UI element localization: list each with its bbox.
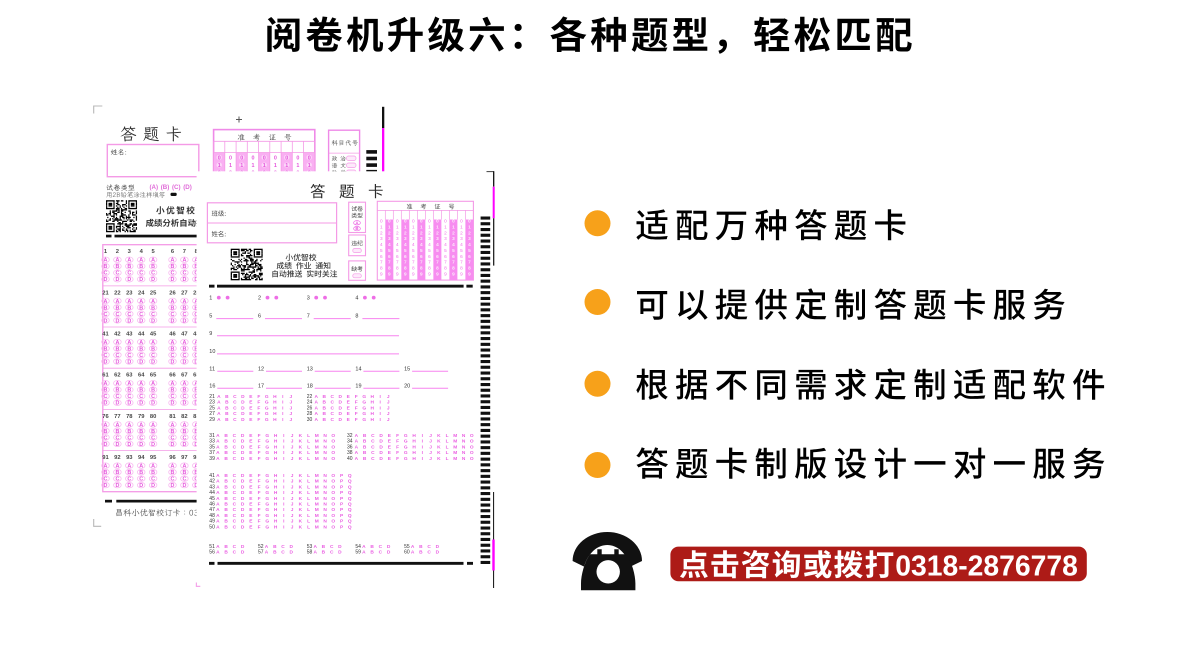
svg-text:ABCDEFGHIJKLMNO: ABCDEFGHIJKLMNO bbox=[355, 433, 474, 439]
svg-text:ABCDEFGHIJKLMNO: ABCDEFGHIJKLMNO bbox=[216, 444, 335, 450]
svg-text:6: 6 bbox=[258, 314, 261, 320]
svg-text:4: 4 bbox=[355, 296, 358, 302]
svg-text:8: 8 bbox=[355, 314, 358, 320]
svg-text:59: 59 bbox=[355, 550, 361, 556]
svg-text:67: 67 bbox=[181, 373, 187, 379]
svg-text:19: 19 bbox=[355, 383, 361, 389]
svg-text:ABCDEFGHIJKLMNO: ABCDEFGHIJKLMNO bbox=[216, 456, 335, 462]
svg-text:18: 18 bbox=[307, 383, 313, 389]
svg-text:41: 41 bbox=[102, 331, 109, 337]
svg-text:30: 30 bbox=[307, 417, 313, 423]
svg-text:20: 20 bbox=[404, 383, 410, 389]
svg-text:ABCDEFGHIJKLMNO: ABCDEFGHIJKLMNO bbox=[355, 444, 474, 450]
svg-text:61: 61 bbox=[102, 373, 109, 379]
svg-text:62: 62 bbox=[114, 373, 120, 379]
svg-text:56: 56 bbox=[209, 550, 215, 556]
svg-text:15: 15 bbox=[404, 366, 410, 372]
svg-text:77: 77 bbox=[114, 414, 120, 420]
svg-text:25: 25 bbox=[150, 290, 157, 296]
svg-text:42: 42 bbox=[114, 331, 120, 337]
svg-text:82: 82 bbox=[181, 414, 187, 420]
svg-text:43: 43 bbox=[126, 331, 133, 337]
svg-text:5: 5 bbox=[209, 314, 212, 320]
svg-text:80: 80 bbox=[150, 414, 156, 420]
svg-text:26: 26 bbox=[169, 290, 176, 296]
svg-text:7: 7 bbox=[307, 314, 310, 320]
svg-text:29: 29 bbox=[209, 417, 215, 423]
svg-text:0318-2876778: 0318-2876778 bbox=[895, 550, 1078, 582]
svg-text:17: 17 bbox=[258, 383, 264, 389]
svg-text:66: 66 bbox=[169, 373, 176, 379]
svg-text:16: 16 bbox=[209, 383, 215, 389]
svg-text:97: 97 bbox=[181, 455, 187, 461]
svg-text:78: 78 bbox=[126, 414, 133, 420]
svg-text:10: 10 bbox=[209, 349, 215, 355]
svg-text:14: 14 bbox=[355, 366, 361, 372]
svg-text:24: 24 bbox=[138, 290, 145, 296]
svg-text:40: 40 bbox=[347, 456, 353, 462]
svg-text:(B): (B) bbox=[161, 184, 170, 191]
svg-text:ABCDEFGHIJKLMNO: ABCDEFGHIJKLMNO bbox=[216, 439, 335, 445]
svg-text:91: 91 bbox=[102, 455, 109, 461]
svg-text:111111111: 111111111 bbox=[218, 163, 311, 169]
svg-text:94: 94 bbox=[138, 455, 145, 461]
svg-text:46: 46 bbox=[169, 331, 176, 337]
svg-text:(C): (C) bbox=[172, 184, 181, 191]
svg-text:ABCDEFGHIJKLMNO: ABCDEFGHIJKLMNO bbox=[355, 450, 474, 456]
svg-text:65: 65 bbox=[150, 373, 157, 379]
svg-text:50: 50 bbox=[209, 525, 215, 531]
svg-text:63: 63 bbox=[126, 373, 133, 379]
svg-text:58: 58 bbox=[307, 550, 313, 556]
svg-text:ABCDEFGHIJKLMNO: ABCDEFGHIJKLMNO bbox=[216, 433, 335, 439]
svg-text:3: 3 bbox=[307, 296, 310, 302]
svg-text:23: 23 bbox=[126, 290, 133, 296]
svg-text:B: B bbox=[355, 226, 358, 231]
svg-text:60: 60 bbox=[404, 550, 410, 556]
svg-text:79: 79 bbox=[138, 414, 145, 420]
svg-text:57: 57 bbox=[258, 550, 264, 556]
svg-text:000000000: 000000000 bbox=[218, 155, 311, 161]
svg-text:(D): (D) bbox=[183, 184, 192, 191]
svg-text:2: 2 bbox=[258, 296, 261, 302]
svg-text:92: 92 bbox=[114, 455, 120, 461]
svg-text:45: 45 bbox=[150, 331, 157, 337]
svg-text:64: 64 bbox=[138, 373, 145, 379]
svg-text:81: 81 bbox=[169, 414, 176, 420]
svg-text:27: 27 bbox=[181, 290, 187, 296]
svg-text:11: 11 bbox=[209, 366, 215, 372]
svg-text:21: 21 bbox=[102, 290, 109, 296]
svg-text:22: 22 bbox=[114, 290, 120, 296]
svg-text:12: 12 bbox=[258, 366, 264, 372]
svg-text:95: 95 bbox=[150, 455, 157, 461]
svg-text:96: 96 bbox=[169, 455, 176, 461]
svg-text:47: 47 bbox=[181, 331, 187, 337]
svg-text:ABCDEFGHIJKLMNO: ABCDEFGHIJKLMNO bbox=[355, 456, 474, 462]
svg-text:13: 13 bbox=[307, 366, 313, 372]
svg-text:93: 93 bbox=[126, 455, 133, 461]
svg-text:44: 44 bbox=[138, 331, 145, 337]
svg-text:1: 1 bbox=[209, 296, 212, 302]
svg-text:9: 9 bbox=[209, 331, 212, 337]
svg-text:ABCDEFGHIJKLMNO: ABCDEFGHIJKLMNO bbox=[216, 450, 335, 456]
svg-text:39: 39 bbox=[209, 456, 215, 462]
svg-text:76: 76 bbox=[102, 414, 109, 420]
svg-text:ABCDEFGHIJKLMNO: ABCDEFGHIJKLMNO bbox=[355, 439, 474, 445]
svg-text:(A): (A) bbox=[150, 184, 159, 191]
